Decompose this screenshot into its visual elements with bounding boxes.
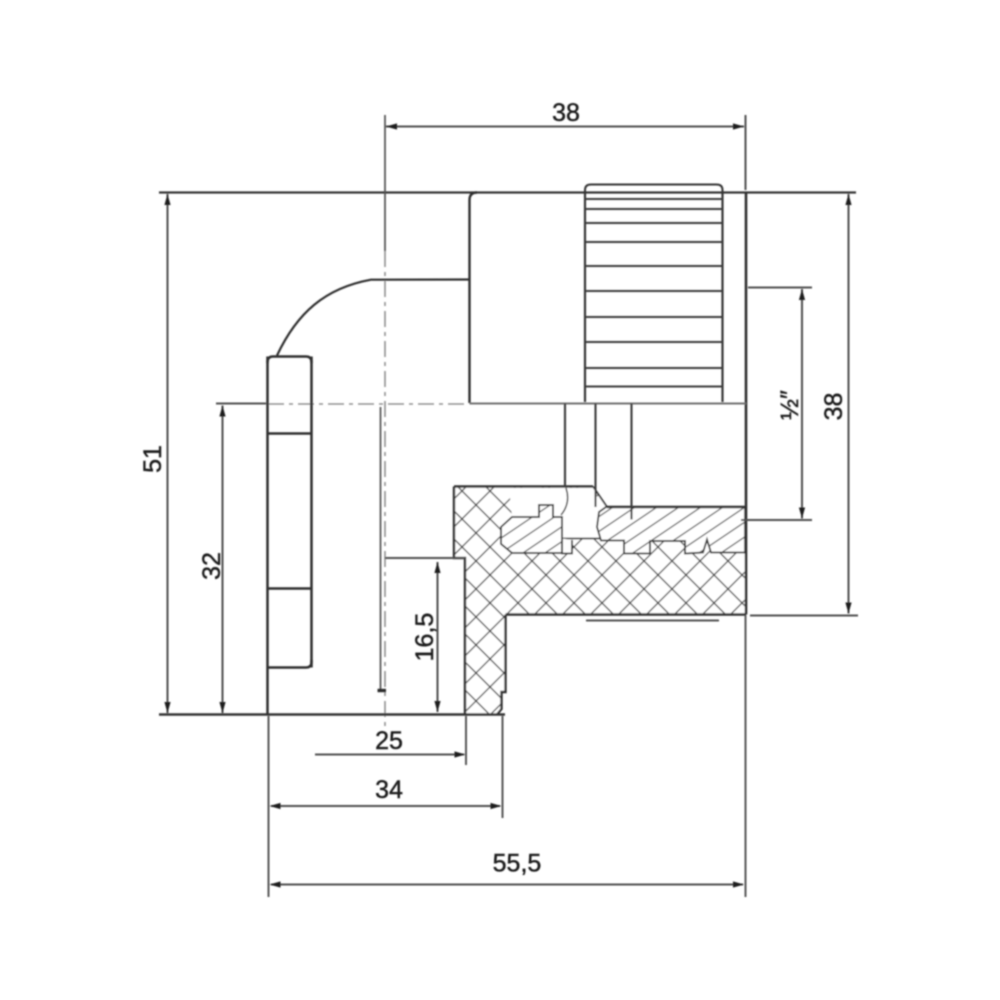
svg-text:34: 34 bbox=[375, 776, 403, 804]
svg-text:38: 38 bbox=[820, 393, 848, 421]
svg-text:16,5: 16,5 bbox=[411, 613, 439, 662]
svg-text:½″: ½″ bbox=[776, 390, 804, 420]
svg-text:38: 38 bbox=[552, 99, 580, 127]
svg-text:55,5: 55,5 bbox=[493, 850, 542, 878]
svg-text:25: 25 bbox=[375, 727, 403, 755]
svg-text:32: 32 bbox=[198, 552, 226, 580]
svg-text:51: 51 bbox=[139, 445, 167, 473]
